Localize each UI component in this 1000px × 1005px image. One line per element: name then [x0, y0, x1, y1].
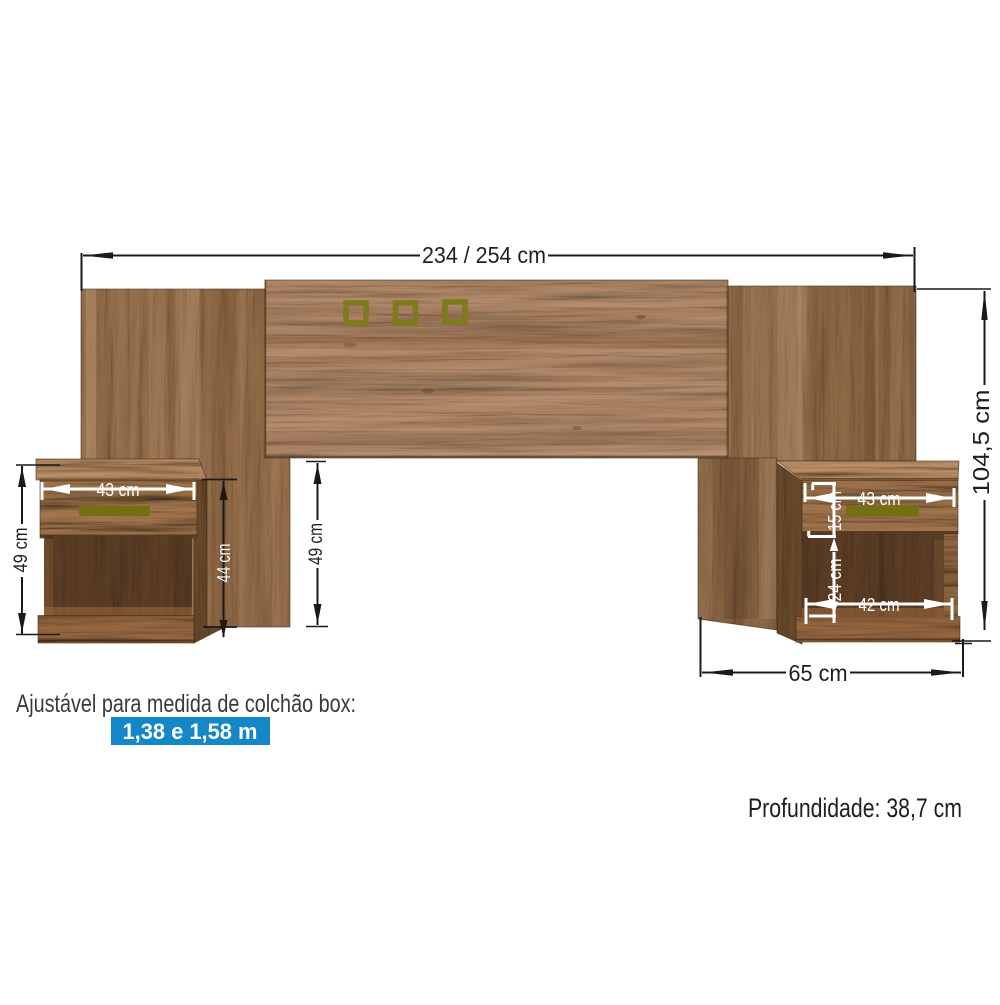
svg-text:234 / 254 cm: 234 / 254 cm — [422, 242, 546, 268]
svg-text:65 cm: 65 cm — [789, 660, 848, 686]
svg-text:104,5 cm: 104,5 cm — [968, 390, 994, 496]
svg-text:49 cm: 49 cm — [11, 528, 32, 573]
svg-text:49 cm: 49 cm — [306, 523, 327, 565]
svg-text:15 cm: 15 cm — [825, 491, 845, 531]
svg-text:44 cm: 44 cm — [214, 544, 234, 583]
svg-text:Profundidade: 38,7 cm: Profundidade: 38,7 cm — [748, 793, 962, 823]
svg-text:24 cm: 24 cm — [825, 559, 845, 602]
svg-text:43 cm: 43 cm — [858, 489, 901, 509]
svg-text:43 cm: 43 cm — [97, 480, 140, 500]
svg-text:1,38 e 1,58 m: 1,38 e 1,58 m — [123, 719, 258, 744]
svg-text:42 cm: 42 cm — [859, 595, 900, 615]
svg-text:Ajustável para medida de colch: Ajustável para medida de colchão box: — [16, 690, 356, 718]
